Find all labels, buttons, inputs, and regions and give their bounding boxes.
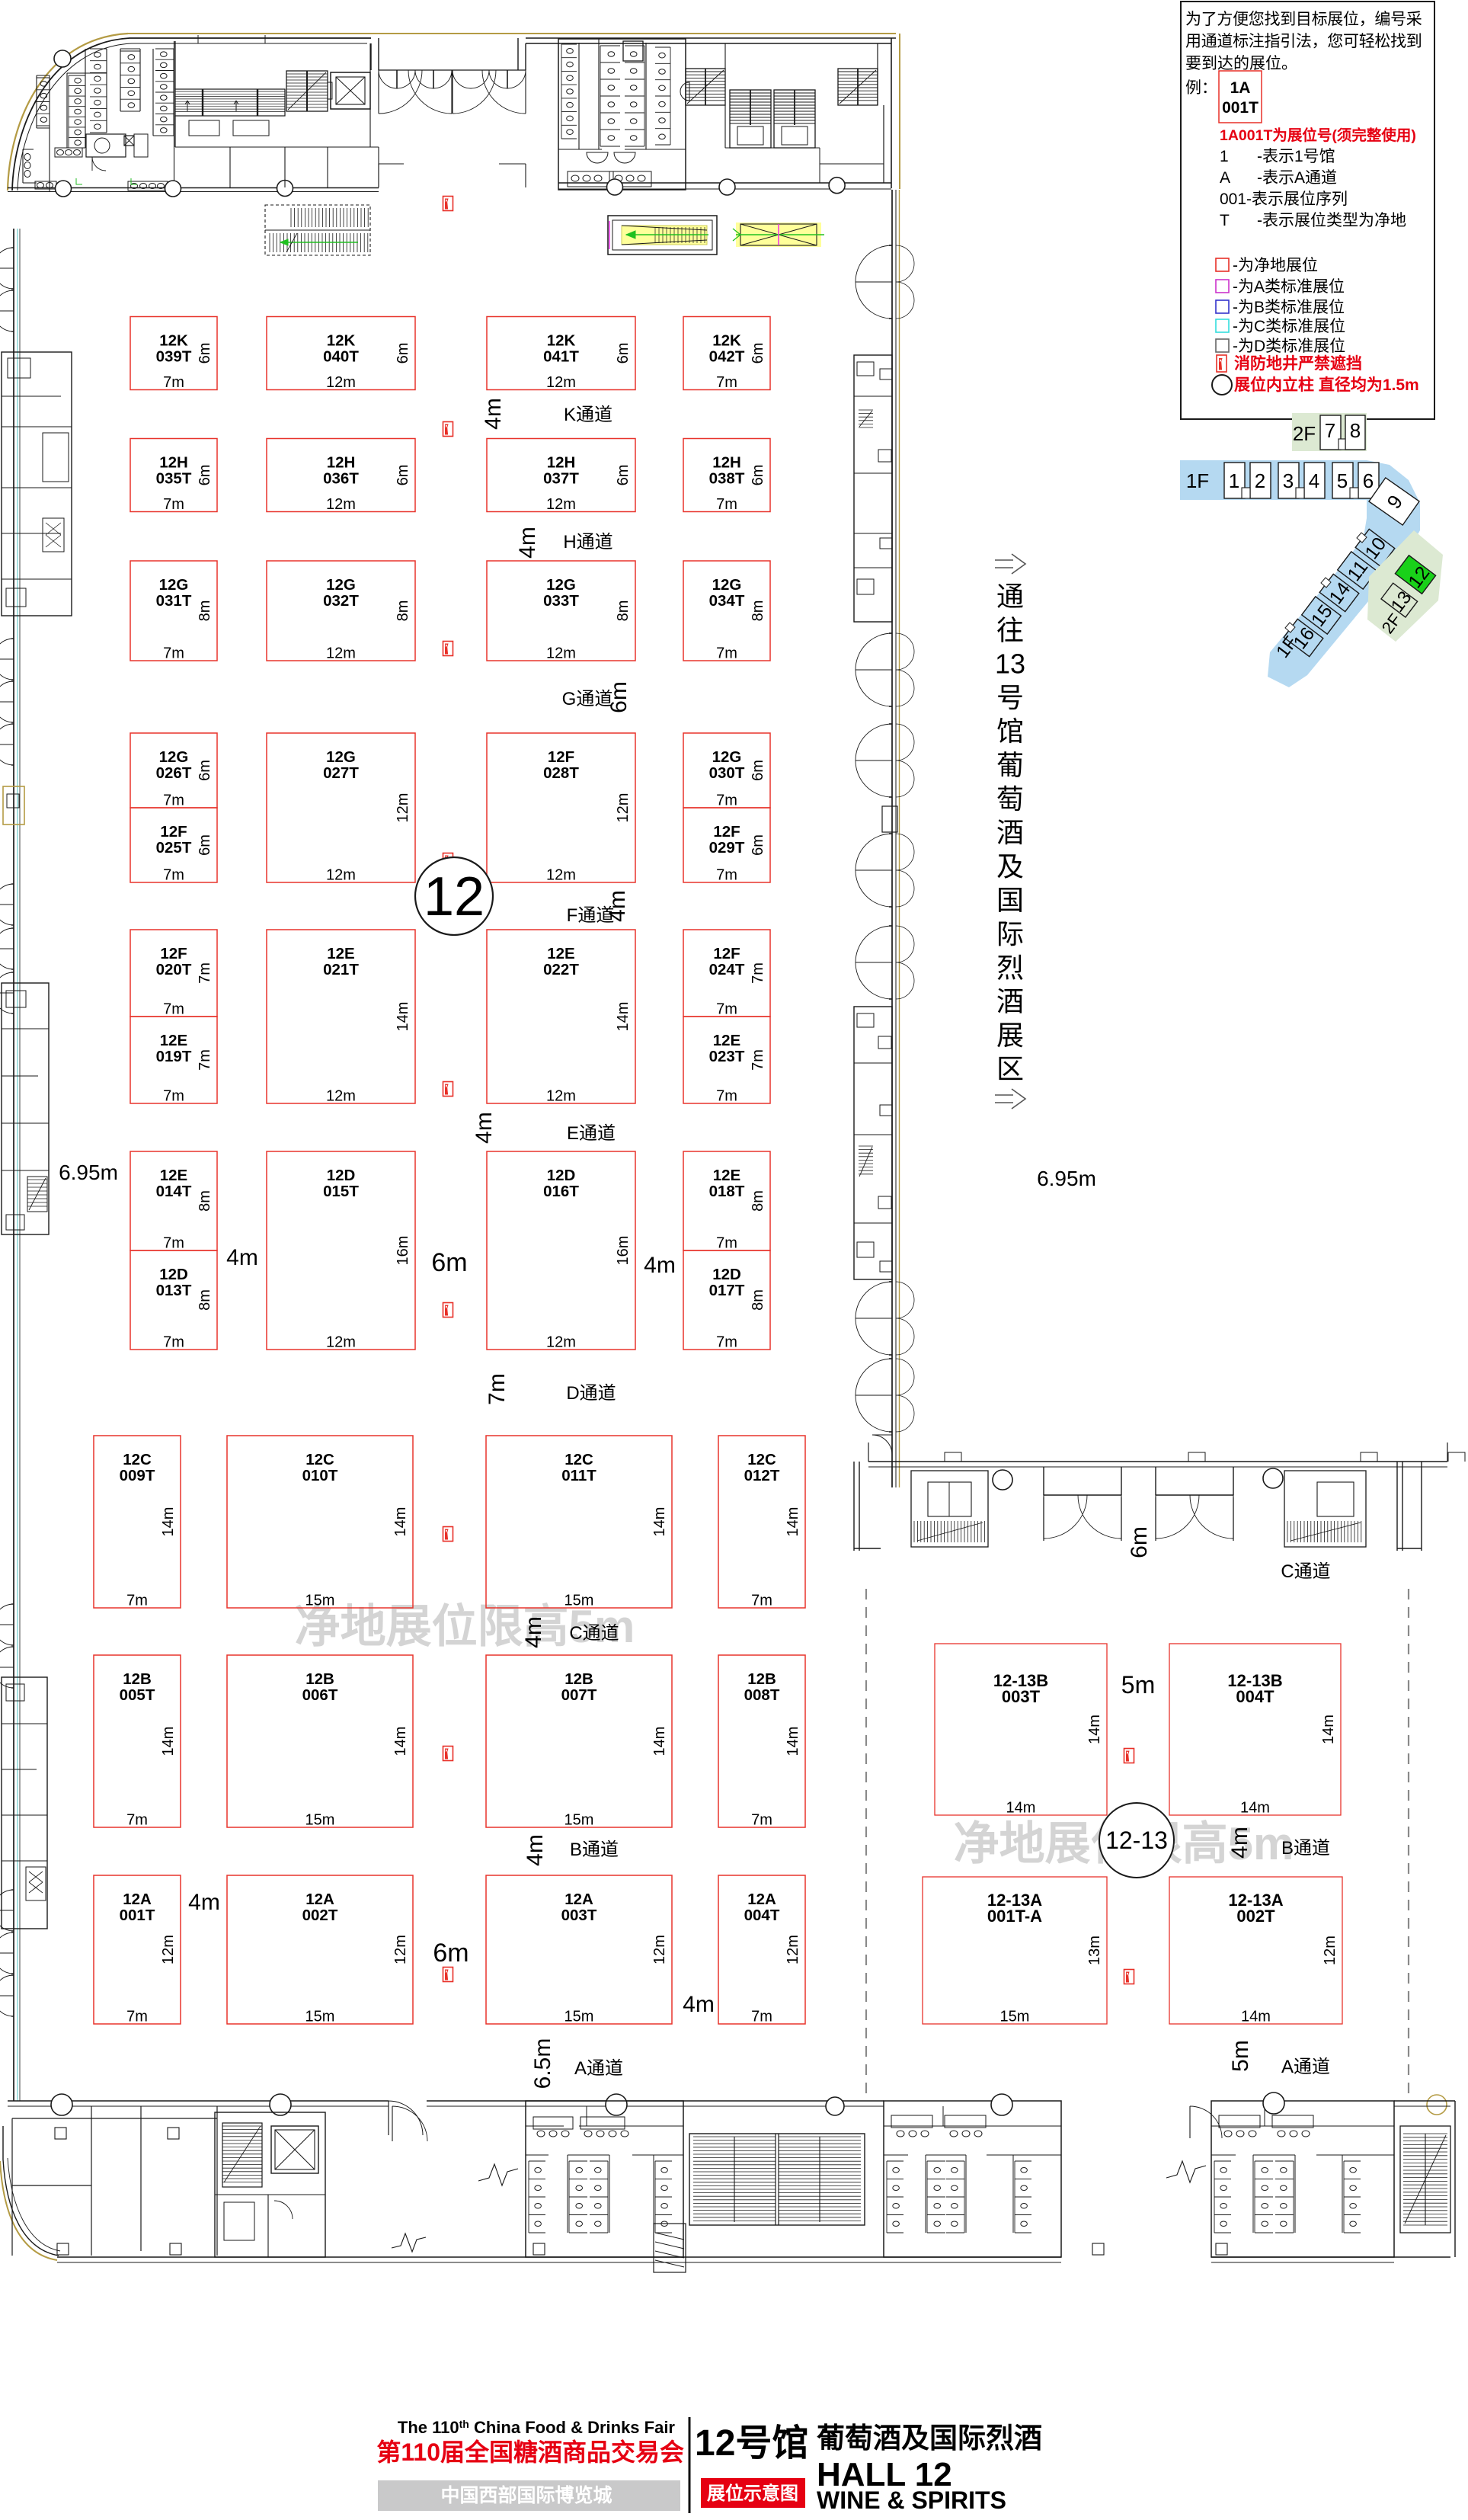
svg-text:7m: 7m <box>716 1235 737 1252</box>
svg-text:12m: 12m <box>1322 1936 1338 1965</box>
svg-text:第110届全国糖酒商品交易会: 第110届全国糖酒商品交易会 <box>376 2438 684 2466</box>
svg-text:14m: 14m <box>785 1507 801 1537</box>
svg-text:030T: 030T <box>709 764 745 782</box>
svg-text:4: 4 <box>1309 469 1319 492</box>
svg-text:-为B类标准展位: -为B类标准展位 <box>1233 299 1345 316</box>
svg-text:12G: 12G <box>712 576 742 594</box>
svg-text:036T: 036T <box>323 470 359 488</box>
svg-text:12m: 12m <box>326 496 356 513</box>
svg-text:12-13: 12-13 <box>1105 1827 1168 1854</box>
svg-text:032T: 032T <box>323 592 359 610</box>
svg-text:葡萄酒及国际烈酒: 葡萄酒及国际烈酒 <box>817 2422 1042 2454</box>
svg-text:12m: 12m <box>785 1935 801 1964</box>
svg-text:H通道: H通道 <box>563 532 612 552</box>
svg-text:-为净地展位: -为净地展位 <box>1233 257 1318 274</box>
svg-text:6m: 6m <box>750 834 766 856</box>
svg-text:4m: 4m <box>188 1890 220 1915</box>
svg-text:12D: 12D <box>159 1266 188 1283</box>
svg-text:7: 7 <box>1325 419 1335 442</box>
svg-text:8m: 8m <box>395 600 411 622</box>
svg-text:7m: 7m <box>716 867 737 884</box>
svg-text:消防地井严禁遮挡: 消防地井严禁遮挡 <box>1234 354 1362 373</box>
svg-text:7m: 7m <box>716 374 737 391</box>
svg-text:7m: 7m <box>126 1812 148 1829</box>
svg-text:12E: 12E <box>160 1032 187 1049</box>
svg-text:7m: 7m <box>751 2009 772 2025</box>
svg-text:7m: 7m <box>751 1812 772 1829</box>
svg-text:038T: 038T <box>709 470 745 488</box>
svg-text:14m: 14m <box>615 1002 632 1032</box>
svg-text:012T: 012T <box>744 1467 780 1484</box>
svg-text:005T: 005T <box>120 1686 155 1704</box>
svg-text:2F: 2F <box>1293 422 1316 445</box>
svg-text:T: T <box>1220 212 1230 229</box>
svg-text:014T: 014T <box>156 1183 192 1200</box>
svg-text:12F: 12F <box>160 823 187 841</box>
svg-text:例：: 例： <box>1185 79 1217 97</box>
svg-text:-为D类标准展位: -为D类标准展位 <box>1233 338 1345 355</box>
svg-text:7m: 7m <box>750 1049 766 1071</box>
svg-text:4m: 4m <box>515 527 540 559</box>
svg-text:5: 5 <box>1337 469 1348 492</box>
svg-text:14m: 14m <box>1086 1715 1103 1744</box>
svg-text:7m: 7m <box>716 1001 737 1018</box>
svg-text:6m: 6m <box>395 465 411 486</box>
svg-text:1A: 1A <box>1230 79 1251 97</box>
svg-text:12m: 12m <box>326 645 356 662</box>
svg-text:017T: 017T <box>709 1282 745 1299</box>
svg-text:6m: 6m <box>615 465 632 486</box>
svg-text:12K: 12K <box>159 332 188 350</box>
svg-text:12m: 12m <box>395 793 411 823</box>
svg-text:12m: 12m <box>651 1935 668 1964</box>
svg-text:12C: 12C <box>564 1451 593 1468</box>
svg-text:12C: 12C <box>305 1451 334 1468</box>
svg-text:展: 展 <box>996 1020 1024 1051</box>
svg-text:7m: 7m <box>126 1593 148 1609</box>
svg-text:12A: 12A <box>305 1891 334 1908</box>
svg-text:12B: 12B <box>123 1670 152 1688</box>
svg-text:7m: 7m <box>716 1334 737 1351</box>
svg-text:-表示展位类型为净地: -表示展位类型为净地 <box>1257 212 1406 229</box>
svg-text:002T: 002T <box>1236 1907 1275 1926</box>
svg-text:展位示意图: 展位示意图 <box>707 2483 798 2504</box>
svg-text:6m: 6m <box>197 465 213 486</box>
svg-text:1F: 1F <box>1186 469 1209 492</box>
svg-text:为了方便您找到目标展位，编号采: 为了方便您找到目标展位，编号采 <box>1185 11 1422 28</box>
svg-text:016T: 016T <box>543 1183 579 1200</box>
svg-text:7m: 7m <box>716 793 737 809</box>
svg-text:020T: 020T <box>156 961 192 978</box>
svg-text:葡: 葡 <box>996 750 1024 781</box>
svg-text:12E: 12E <box>327 945 354 962</box>
svg-text:12A: 12A <box>747 1891 776 1908</box>
svg-text:15m: 15m <box>1000 2009 1030 2025</box>
svg-text:007T: 007T <box>561 1686 597 1704</box>
svg-text:15m: 15m <box>564 1593 594 1609</box>
svg-text:13: 13 <box>995 648 1025 680</box>
svg-text:4m: 4m <box>523 1834 548 1866</box>
svg-text:4m: 4m <box>644 1253 676 1278</box>
svg-text:1: 1 <box>1220 148 1229 165</box>
svg-text:12E: 12E <box>547 945 574 962</box>
svg-text:7m: 7m <box>163 1088 184 1105</box>
svg-text:1: 1 <box>1229 469 1239 492</box>
svg-text:12m: 12m <box>392 1935 409 1964</box>
svg-text:14m: 14m <box>1241 2009 1271 2025</box>
svg-text:12m: 12m <box>326 1334 356 1351</box>
svg-text:4m: 4m <box>1227 1827 1252 1859</box>
svg-text:7m: 7m <box>163 1334 184 1351</box>
svg-text:6m: 6m <box>197 760 213 781</box>
svg-text:15m: 15m <box>564 1812 594 1829</box>
svg-text:031T: 031T <box>156 592 192 610</box>
svg-text:6m: 6m <box>750 760 766 781</box>
svg-text:7m: 7m <box>716 1088 737 1105</box>
svg-text:034T: 034T <box>709 592 745 610</box>
svg-text:12B: 12B <box>747 1670 776 1688</box>
svg-text:027T: 027T <box>323 764 359 782</box>
svg-text:6m: 6m <box>197 343 213 364</box>
svg-text:14m: 14m <box>1006 1800 1036 1817</box>
svg-text:12F: 12F <box>548 748 574 766</box>
svg-text:4m: 4m <box>472 1112 497 1144</box>
svg-text:021T: 021T <box>323 961 359 978</box>
svg-text:12m: 12m <box>546 496 576 513</box>
svg-text:015T: 015T <box>323 1183 359 1200</box>
svg-text:-为C类标准展位: -为C类标准展位 <box>1233 318 1345 335</box>
svg-text:6m: 6m <box>750 343 766 364</box>
svg-text:14m: 14m <box>651 1507 668 1537</box>
svg-text:展位内立柱 直径均为1.5m: 展位内立柱 直径均为1.5m <box>1234 376 1419 394</box>
svg-text:萄: 萄 <box>996 783 1024 815</box>
svg-text:区: 区 <box>996 1053 1024 1084</box>
svg-text:15m: 15m <box>305 2009 335 2025</box>
svg-text:用通道标注指引法，您可轻松找到: 用通道标注指引法，您可轻松找到 <box>1185 33 1422 50</box>
svg-text:际: 际 <box>996 918 1024 949</box>
svg-text:042T: 042T <box>709 348 745 366</box>
svg-text:12G: 12G <box>712 748 742 766</box>
svg-text:5m: 5m <box>1121 1671 1155 1699</box>
svg-text:013T: 013T <box>156 1282 192 1299</box>
svg-text:029T: 029T <box>709 839 745 857</box>
svg-text:The 110th China Food & Drinks: The 110th China Food & Drinks Fair <box>398 2418 676 2437</box>
svg-text:12G: 12G <box>159 748 189 766</box>
svg-text:E通道: E通道 <box>567 1123 616 1144</box>
svg-text:12G: 12G <box>326 576 356 594</box>
svg-text:12A: 12A <box>123 1891 152 1908</box>
svg-text:12H: 12H <box>327 454 356 472</box>
svg-text:12K: 12K <box>712 332 741 350</box>
svg-text:WINE & SPIRITS: WINE & SPIRITS <box>817 2486 1006 2514</box>
svg-text:7m: 7m <box>163 496 184 513</box>
svg-text:要到达的展位。: 要到达的展位。 <box>1185 55 1297 72</box>
svg-text:7m: 7m <box>163 374 184 391</box>
svg-text:12m: 12m <box>546 1334 576 1351</box>
svg-text:028T: 028T <box>543 764 579 782</box>
svg-text:5m: 5m <box>1228 2040 1253 2072</box>
svg-text:中国西部国际博览城: 中国西部国际博览城 <box>440 2484 612 2506</box>
svg-text:7m: 7m <box>197 1049 213 1071</box>
svg-text:12B: 12B <box>305 1670 334 1688</box>
svg-text:6.95m: 6.95m <box>1037 1167 1096 1190</box>
svg-text:14m: 14m <box>1240 1800 1270 1817</box>
svg-text:14m: 14m <box>160 1507 177 1537</box>
svg-text:烈: 烈 <box>996 952 1024 983</box>
svg-text:7m: 7m <box>163 1235 184 1252</box>
svg-text:001-表示展位序列: 001-表示展位序列 <box>1220 191 1348 208</box>
svg-text:12F: 12F <box>713 945 740 962</box>
svg-text:010T: 010T <box>302 1467 338 1484</box>
svg-text:003T: 003T <box>561 1907 597 1924</box>
svg-text:C通道: C通道 <box>569 1623 619 1644</box>
svg-text:12m: 12m <box>326 1088 356 1105</box>
svg-text:041T: 041T <box>543 348 579 366</box>
svg-text:6m: 6m <box>433 1939 469 1968</box>
svg-text:馆: 馆 <box>996 716 1024 747</box>
svg-text:8m: 8m <box>615 600 632 622</box>
svg-text:6m: 6m <box>606 681 632 713</box>
svg-text:12G: 12G <box>159 576 189 594</box>
svg-text:7m: 7m <box>126 2009 148 2025</box>
svg-text:15m: 15m <box>305 1593 335 1609</box>
svg-text:023T: 023T <box>709 1048 745 1065</box>
svg-text:15m: 15m <box>305 1812 335 1829</box>
svg-text:026T: 026T <box>156 764 192 782</box>
svg-text:14m: 14m <box>1320 1715 1337 1744</box>
svg-text:4m: 4m <box>605 890 630 922</box>
svg-text:4m: 4m <box>226 1245 258 1270</box>
svg-text:12D: 12D <box>712 1266 741 1283</box>
svg-text:004T: 004T <box>1236 1687 1275 1706</box>
svg-text:12K: 12K <box>547 332 576 350</box>
svg-text:7m: 7m <box>197 962 213 984</box>
svg-text:006T: 006T <box>302 1686 338 1704</box>
svg-text:A: A <box>1220 169 1230 187</box>
svg-text:6: 6 <box>1363 469 1374 492</box>
svg-text:12D: 12D <box>327 1167 356 1184</box>
svg-text:B通道: B通道 <box>570 1840 619 1860</box>
svg-text:12m: 12m <box>326 867 356 884</box>
svg-text:往: 往 <box>996 614 1024 645</box>
svg-text:6m: 6m <box>197 834 213 856</box>
svg-text:009T: 009T <box>120 1467 155 1484</box>
svg-text:A通道: A通道 <box>1281 2057 1330 2077</box>
svg-text:12C: 12C <box>747 1451 776 1468</box>
svg-text:酒: 酒 <box>996 817 1024 848</box>
svg-text:14m: 14m <box>651 1727 668 1756</box>
svg-text:12m: 12m <box>160 1935 177 1964</box>
svg-text:018T: 018T <box>709 1183 745 1200</box>
svg-text:004T: 004T <box>744 1907 780 1924</box>
svg-text:C通道: C通道 <box>1281 1561 1330 1582</box>
svg-text:B通道: B通道 <box>1281 1838 1330 1859</box>
svg-text:-表示1号馆: -表示1号馆 <box>1257 148 1335 165</box>
svg-text:15m: 15m <box>564 2009 594 2025</box>
svg-text:酒: 酒 <box>996 986 1024 1017</box>
svg-text:001T-A: 001T-A <box>987 1907 1042 1926</box>
svg-text:037T: 037T <box>543 470 579 488</box>
svg-text:4m: 4m <box>521 1616 546 1648</box>
svg-text:011T: 011T <box>561 1467 596 1484</box>
svg-text:12H: 12H <box>547 454 576 472</box>
svg-text:6m: 6m <box>750 465 766 486</box>
svg-text:12E: 12E <box>160 1167 187 1184</box>
svg-text:G通道: G通道 <box>562 689 613 709</box>
svg-text:13m: 13m <box>1086 1936 1103 1965</box>
svg-text:002T: 002T <box>302 1907 338 1924</box>
svg-text:-为A类标准展位: -为A类标准展位 <box>1233 278 1345 296</box>
svg-text:12m: 12m <box>546 1088 576 1105</box>
svg-text:12G: 12G <box>326 748 356 766</box>
svg-text:8m: 8m <box>750 1190 766 1212</box>
svg-text:14m: 14m <box>160 1727 177 1756</box>
svg-text:A通道: A通道 <box>574 2058 623 2079</box>
svg-text:12D: 12D <box>547 1167 576 1184</box>
svg-text:16m: 16m <box>395 1236 411 1266</box>
svg-text:035T: 035T <box>156 470 192 488</box>
svg-text:1A001T为展位号(须完整使用): 1A001T为展位号(须完整使用) <box>1220 126 1416 144</box>
svg-text:7m: 7m <box>716 496 737 513</box>
svg-text:008T: 008T <box>744 1686 780 1704</box>
svg-text:7m: 7m <box>163 867 184 884</box>
svg-text:4m: 4m <box>683 1992 715 2017</box>
svg-text:6m: 6m <box>1127 1526 1152 1558</box>
svg-text:12H: 12H <box>159 454 188 472</box>
svg-text:001T: 001T <box>1222 99 1259 117</box>
svg-text:12K: 12K <box>327 332 356 350</box>
svg-text:7m: 7m <box>163 1001 184 1018</box>
svg-text:号: 号 <box>996 682 1024 713</box>
svg-text:通: 通 <box>996 581 1024 612</box>
svg-text:2: 2 <box>1255 469 1265 492</box>
svg-text:及: 及 <box>996 850 1024 882</box>
svg-text:12F: 12F <box>713 823 740 841</box>
svg-text:7m: 7m <box>163 645 184 662</box>
svg-text:8m: 8m <box>197 1190 213 1212</box>
svg-text:12m: 12m <box>546 867 576 884</box>
svg-text:6m: 6m <box>431 1248 467 1277</box>
svg-text:14m: 14m <box>785 1727 801 1756</box>
svg-text:7m: 7m <box>485 1373 510 1405</box>
svg-text:6.95m: 6.95m <box>59 1161 118 1184</box>
svg-text:025T: 025T <box>156 839 192 857</box>
svg-text:039T: 039T <box>156 348 192 366</box>
svg-text:12A: 12A <box>564 1891 593 1908</box>
svg-text:8m: 8m <box>197 1289 213 1311</box>
svg-text:国: 国 <box>996 885 1024 916</box>
svg-text:-表示A通道: -表示A通道 <box>1257 169 1337 187</box>
svg-text:12m: 12m <box>615 793 632 823</box>
svg-text:6.5m: 6.5m <box>530 2038 555 2089</box>
svg-text:033T: 033T <box>543 592 579 610</box>
svg-text:12m: 12m <box>546 645 576 662</box>
svg-text:12m: 12m <box>326 374 356 391</box>
svg-text:16m: 16m <box>615 1236 632 1266</box>
svg-text:12E: 12E <box>713 1167 740 1184</box>
svg-text:12B: 12B <box>564 1670 593 1688</box>
svg-text:12m: 12m <box>546 374 576 391</box>
svg-text:14m: 14m <box>392 1727 409 1756</box>
svg-text:3: 3 <box>1283 469 1294 492</box>
svg-text:6m: 6m <box>615 343 632 364</box>
svg-text:6m: 6m <box>395 343 411 364</box>
svg-text:003T: 003T <box>1002 1687 1041 1706</box>
svg-text:001T: 001T <box>120 1907 155 1924</box>
svg-text:8m: 8m <box>197 600 213 622</box>
svg-text:019T: 019T <box>156 1048 192 1065</box>
svg-text:12G: 12G <box>546 576 576 594</box>
svg-text:8m: 8m <box>750 1289 766 1311</box>
svg-text:12号馆: 12号馆 <box>695 2423 808 2464</box>
svg-text:D通道: D通道 <box>566 1383 616 1404</box>
svg-text:024T: 024T <box>709 961 745 978</box>
svg-text:12H: 12H <box>712 454 741 472</box>
svg-text:4m: 4m <box>481 398 506 430</box>
svg-text:7m: 7m <box>716 645 737 662</box>
svg-text:K通道: K通道 <box>564 405 612 425</box>
svg-text:7m: 7m <box>751 1593 772 1609</box>
svg-text:14m: 14m <box>395 1002 411 1032</box>
svg-text:12F: 12F <box>160 945 187 962</box>
svg-text:022T: 022T <box>543 961 579 978</box>
svg-text:8: 8 <box>1350 419 1361 442</box>
svg-text:12C: 12C <box>123 1451 152 1468</box>
svg-text:8m: 8m <box>750 600 766 622</box>
svg-text:040T: 040T <box>323 348 359 366</box>
svg-text:7m: 7m <box>163 793 184 809</box>
svg-text:12E: 12E <box>713 1032 740 1049</box>
svg-text:14m: 14m <box>392 1507 409 1537</box>
svg-text:7m: 7m <box>750 962 766 984</box>
svg-text:12: 12 <box>424 866 485 927</box>
